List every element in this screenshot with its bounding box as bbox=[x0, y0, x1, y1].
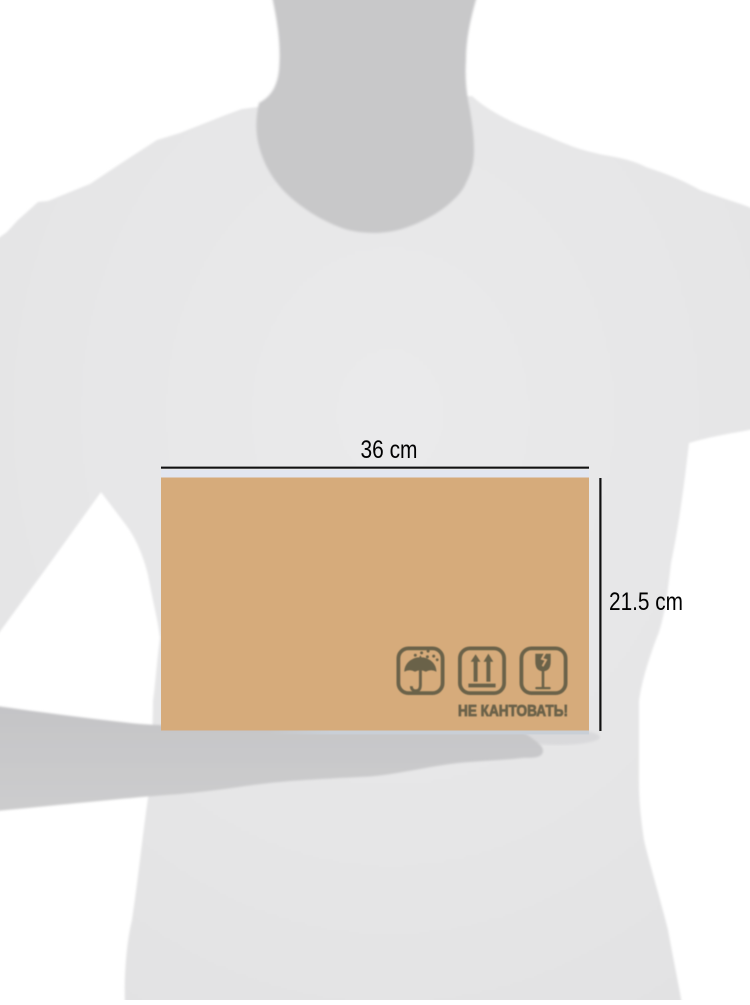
svg-text:21.5 cm: 21.5 cm bbox=[609, 588, 683, 616]
svg-text:36 cm: 36 cm bbox=[361, 436, 418, 464]
svg-text:НЕ КАНТОВАТЬ!: НЕ КАНТОВАТЬ! bbox=[458, 703, 568, 720]
